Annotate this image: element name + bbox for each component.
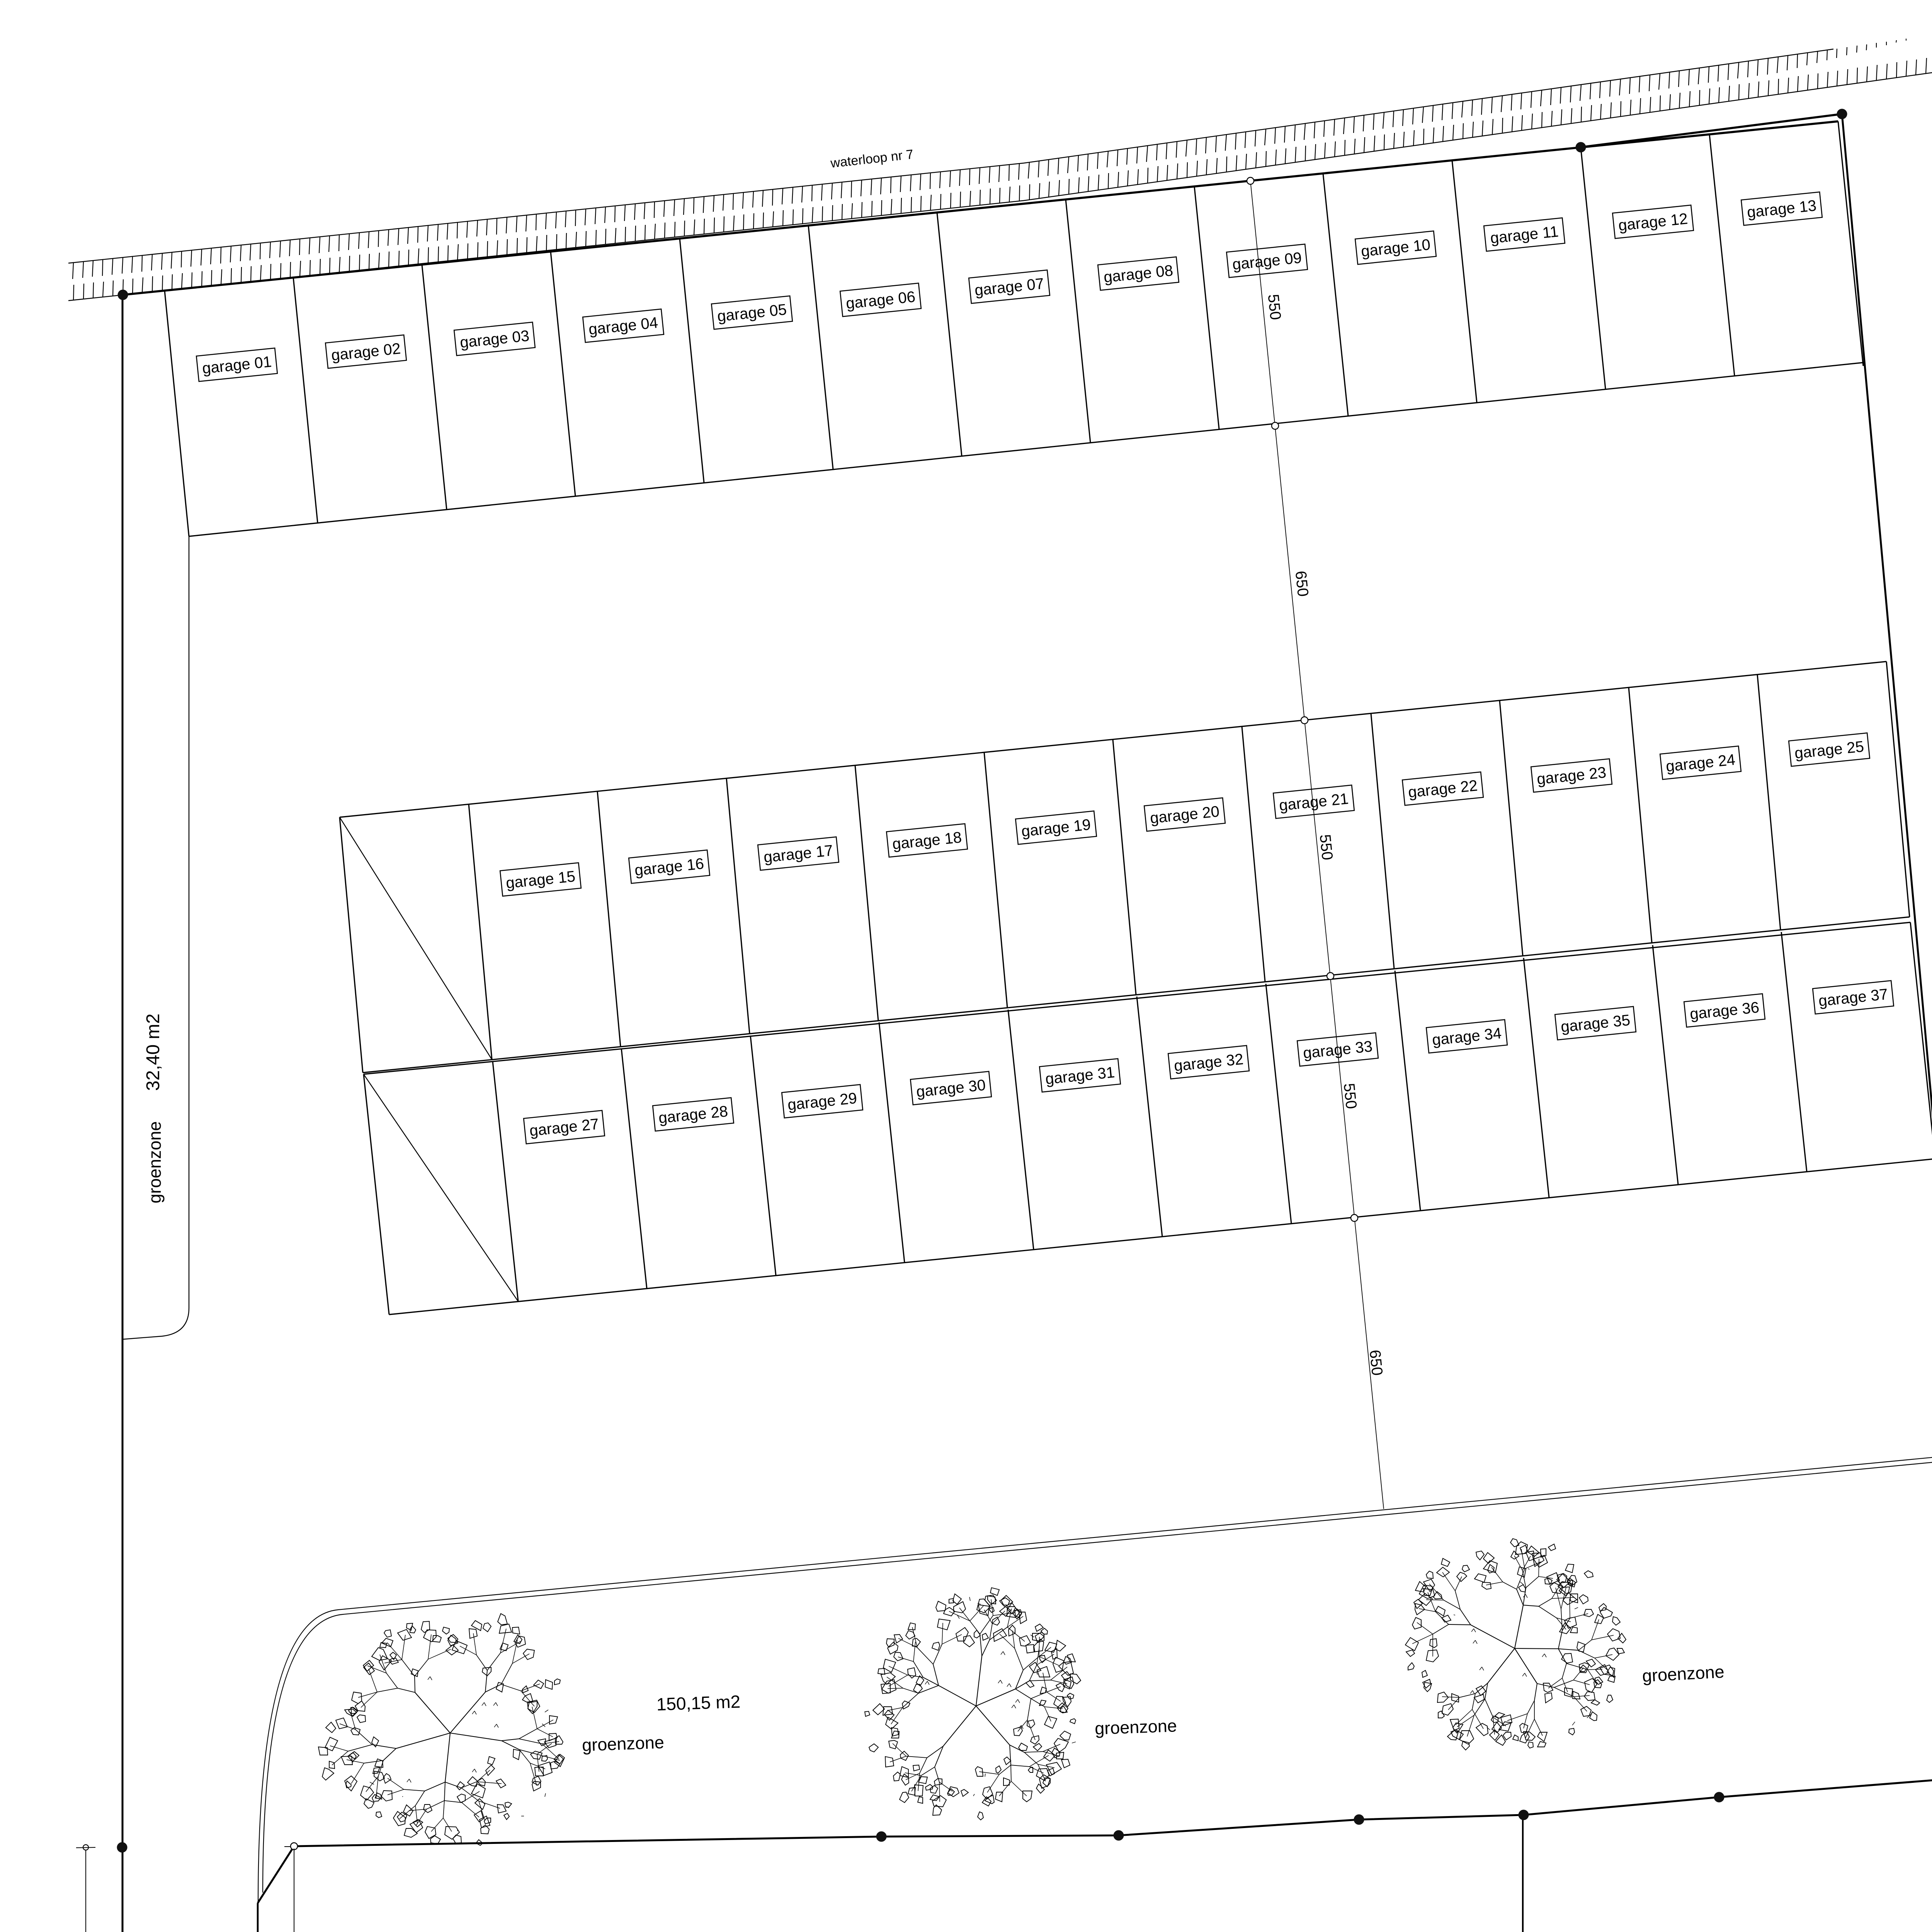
- svg-text:550: 550: [1316, 833, 1336, 861]
- svg-text:550: 550: [1340, 1082, 1360, 1110]
- svg-text:32,40 m2: 32,40 m2: [143, 1014, 163, 1091]
- svg-text:650: 650: [1366, 1349, 1386, 1376]
- svg-text:groenzone: groenzone: [1094, 1716, 1177, 1738]
- svg-text:650: 650: [1292, 570, 1311, 597]
- svg-text:150,15 m2: 150,15 m2: [656, 1691, 741, 1714]
- svg-text:groenzone: groenzone: [582, 1732, 664, 1755]
- svg-text:550: 550: [1265, 293, 1284, 321]
- svg-text:groenzone: groenzone: [145, 1121, 165, 1204]
